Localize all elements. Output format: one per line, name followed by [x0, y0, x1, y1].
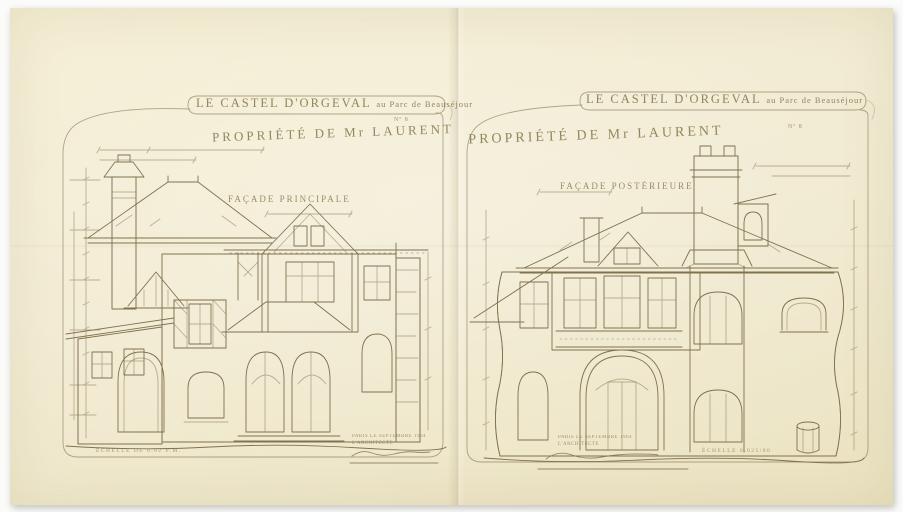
- title-main-left: LE CASTEL D'ORGEVAL: [196, 96, 371, 110]
- left-bay-right-facade: [518, 282, 548, 440]
- signature-role-right: L'ARCHITECTE: [558, 441, 632, 448]
- facade-label-left: FAÇADE PRINCIPALE: [228, 194, 351, 204]
- left-dormer: [124, 272, 188, 308]
- signature-block-left: PARIS LE SEPTEMBRE 1904 L'ARCHITECTE: [352, 433, 426, 447]
- sheet-frame-right: [467, 92, 874, 462]
- first-floor-windows: [564, 276, 676, 328]
- stone-niche: [780, 298, 828, 332]
- main-roof-left: [84, 176, 276, 243]
- right-facade-drawing: [470, 146, 864, 463]
- dimension-lines-right: [483, 163, 857, 450]
- shuttered-window: [174, 300, 226, 348]
- right-tower: [682, 250, 752, 452]
- signature-block-right: PARIS LE SEPTEMBRE 1904 L'ARCHITECTE: [558, 434, 632, 448]
- signature-role-left: L'ARCHITECTE: [352, 440, 426, 447]
- left-wing-wall: [78, 327, 162, 444]
- lower-left-window: [188, 372, 224, 418]
- side-arch: [118, 352, 164, 432]
- facade-label-right: FAÇADE POSTÉRIEURE: [560, 181, 694, 191]
- right-bay-left-facade: [362, 243, 420, 442]
- entrance-porch: [222, 302, 356, 441]
- central-gable: [262, 204, 358, 332]
- signature-date-left: PARIS LE SEPTEMBRE 1904: [352, 433, 426, 440]
- plate-number-right: Nº 8: [788, 124, 803, 130]
- veranda-cornice: [224, 250, 428, 300]
- balcony: [556, 331, 682, 347]
- sheet-title-right: LE CASTEL D'ORGEVAL au Parc de Beauséjou…: [586, 92, 860, 107]
- title-tail-left: au Parc de Beauséjour: [376, 99, 473, 109]
- title-main-right: LE CASTEL D'ORGEVAL: [586, 92, 761, 106]
- scale-note-left: ÉCHELLE DE 0.02 P.M.: [96, 448, 182, 454]
- scale-note-right: ÉCHELLE 0.025/00: [702, 448, 771, 454]
- entrance-steps: [234, 436, 344, 441]
- barrel: [797, 422, 819, 453]
- scanned-architectural-drawing: LE CASTEL D'ORGEVAL au Parc de Beauséjou…: [0, 0, 903, 512]
- main-roof-right: [470, 207, 838, 322]
- title-tail-right: au Parc de Beauséjour: [766, 95, 863, 105]
- signature-date-right: PARIS LE SEPTEMBRE 1904: [558, 434, 632, 441]
- left-facade-drawing: [66, 147, 446, 450]
- left-chimney: [104, 155, 144, 309]
- elevation-line-art: [0, 0, 903, 512]
- sheet-title-left: LE CASTEL D'ORGEVAL au Parc de Beauséjou…: [196, 96, 442, 111]
